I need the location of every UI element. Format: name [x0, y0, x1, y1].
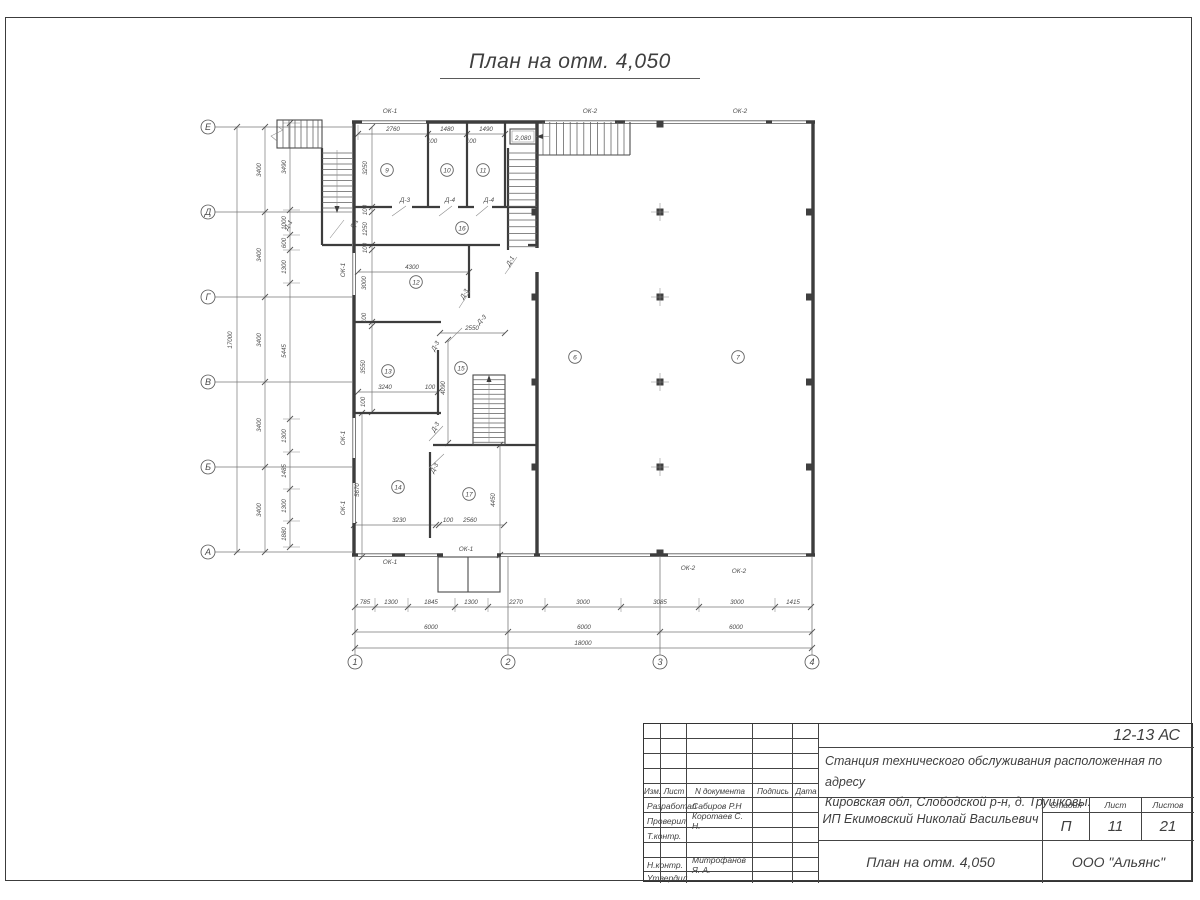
- room-number: 15: [457, 365, 465, 372]
- dimension-label: 1300: [464, 599, 478, 606]
- dimension-label: 1485: [281, 464, 288, 478]
- room-number: 12: [412, 279, 420, 286]
- dimension-label: 1480: [440, 126, 454, 133]
- dimension-label: 1880: [281, 527, 288, 541]
- stamp-role: [644, 843, 687, 858]
- door-label: Д-4: [483, 197, 495, 204]
- elevation-label: 2,080: [514, 135, 531, 142]
- dimension-label: 3400: [256, 163, 263, 177]
- dimension-label: 5445: [281, 344, 288, 358]
- sheet-label: Лист: [1089, 798, 1141, 813]
- dimension-label: 6000: [424, 624, 438, 631]
- drawing-sheet: План на отм. 4,050: [0, 0, 1200, 900]
- column-marker: [532, 294, 539, 301]
- client-name: ИП Екимовский Николай Васильевич: [819, 798, 1042, 841]
- dimension-label: 17000: [227, 331, 234, 349]
- dimension-label: 4450: [490, 493, 497, 507]
- door-label: Д-3: [430, 340, 442, 354]
- room-numbers: 9101116121315141767: [381, 164, 745, 501]
- dimension-label: 3400: [256, 333, 263, 347]
- column-marker: [657, 121, 664, 128]
- stamp-role: Проверил: [644, 813, 687, 828]
- room-number: 7: [736, 354, 740, 361]
- door-label: Д-1: [349, 218, 361, 232]
- stamp-row: [644, 754, 819, 769]
- window-label: ОК-2: [681, 565, 696, 572]
- elevation-value: 2,080: [514, 135, 531, 142]
- axis-label: А: [204, 547, 211, 557]
- room-number: 10: [443, 167, 451, 174]
- sheets-total: 21: [1141, 813, 1194, 841]
- dimension-label: 3550: [360, 360, 367, 374]
- column-marker: [532, 379, 539, 386]
- stamp-role: Утвердил: [644, 872, 687, 883]
- axis-label: 3: [657, 657, 662, 667]
- room-number: 14: [394, 484, 402, 491]
- window-label: ОК-1: [340, 430, 347, 445]
- window-label: ОК-1: [383, 108, 398, 115]
- stamp-header-list: Лист: [661, 784, 687, 798]
- dimension-label: 2560: [462, 517, 477, 524]
- room-number: 13: [384, 368, 392, 375]
- dimension-label: 3400: [256, 503, 263, 517]
- dimension-label: 3000: [361, 276, 368, 290]
- dimension-label: 3240: [378, 384, 392, 391]
- window-label: ОК-2: [732, 568, 747, 575]
- stamp-header-data: Дата: [793, 784, 819, 798]
- axis-label: Г: [206, 292, 212, 302]
- dimension-label: 5670: [354, 483, 361, 497]
- dimension-label: 4090: [440, 381, 447, 395]
- dimension-label: 100: [443, 517, 454, 524]
- axis-column-labels: 1234: [348, 655, 819, 669]
- dimension-label: 3400: [256, 248, 263, 262]
- axis-label: 1: [352, 657, 357, 667]
- stamp-header-podpis: Подпись: [753, 784, 793, 798]
- stamp-header-izm: Изм.: [644, 784, 661, 798]
- window-label: ОК-1: [459, 546, 474, 553]
- axis-label: 4: [809, 657, 814, 667]
- dimension-label: 785: [360, 599, 371, 606]
- sheet-number: 11: [1089, 813, 1141, 841]
- dimension-label: 18000: [574, 640, 592, 647]
- stamp-name: Коротаев С. Н.: [689, 813, 753, 828]
- dimension-label: 1300: [384, 599, 398, 606]
- door-label: Д-3: [399, 197, 411, 204]
- project-description: Станция технического обслуживания распол…: [819, 748, 1194, 798]
- window-label: ОК-1: [340, 262, 347, 277]
- dimension-label: 1300: [281, 429, 288, 443]
- stamp-role: Разработал: [644, 798, 687, 813]
- stamp-name: [689, 828, 753, 843]
- column-marker: [806, 294, 813, 301]
- dimension-label: 1250: [362, 222, 369, 236]
- column-marker: [806, 209, 813, 216]
- stamp-sheet-title: План на отм. 4,050: [819, 841, 1042, 883]
- dimension-label: 1300: [281, 499, 288, 513]
- dimension-label: 1490: [479, 126, 493, 133]
- porch: [438, 557, 500, 592]
- exterior-walls: [352, 121, 815, 557]
- stage-value: П: [1042, 813, 1089, 841]
- door-label: Д-1: [505, 255, 517, 269]
- column-marker: [806, 464, 813, 471]
- axis-label: Е: [205, 122, 212, 132]
- stamp-role: Т.контр.: [644, 828, 687, 843]
- room-number: 6: [573, 354, 577, 361]
- stamp-row: [644, 739, 819, 754]
- dimension-label: 2270: [508, 599, 523, 606]
- dimension-label: 2760: [385, 126, 400, 133]
- column-marker: [806, 379, 813, 386]
- title-block: Изм. Лист N документа Подпись Дата Разра…: [643, 723, 1193, 882]
- room-number: 11: [480, 167, 487, 174]
- stamp-row: [644, 769, 819, 784]
- dimension-label: 600: [281, 237, 288, 248]
- columns: [532, 121, 814, 557]
- dimension-label: 100: [360, 396, 367, 407]
- column-marker: [532, 464, 539, 471]
- project-line1: Станция технического обслуживания распол…: [825, 751, 1188, 792]
- dimension-label: 3000: [730, 599, 744, 606]
- dimension-label: 100: [425, 384, 436, 391]
- dimension-label: 1300: [281, 260, 288, 274]
- stage-label: Стадия: [1042, 798, 1089, 813]
- dimension-labels: 1700034003400340034003400349010006001300…: [227, 126, 800, 647]
- sheets-label: Листов: [1141, 798, 1194, 813]
- column-marker: [532, 209, 539, 216]
- dimension-label: 100: [362, 242, 369, 253]
- axis-label: Д: [204, 207, 212, 217]
- door-label: Д-4: [444, 197, 456, 204]
- dimension-label: 1845: [424, 599, 438, 606]
- window-label: ОК-2: [733, 108, 748, 115]
- door-label: Д-3: [430, 421, 442, 435]
- stamp-name: Митрофанов Я. А.: [689, 858, 753, 872]
- dimension-label: 100: [427, 138, 438, 145]
- stamp-header-ndoc: N документа: [687, 784, 753, 798]
- window-label: ОК-1: [383, 559, 398, 566]
- axis-row-labels: ЕДГВБА: [201, 120, 215, 559]
- door-labels: Д-3Д-4Д-4Д-1Д-1Д-1Д-3Д-3Д-3Д-3Д-3: [283, 197, 517, 475]
- dimension-label: 2550: [464, 325, 479, 332]
- dimension-label: 1415: [786, 599, 800, 606]
- company-name: ООО "Альянс": [1042, 841, 1194, 883]
- room-number: 9: [385, 167, 389, 174]
- dimension-label: 3250: [362, 161, 369, 175]
- room-number: 17: [465, 491, 473, 498]
- window-label: ОК-2: [583, 108, 598, 115]
- dimension-label: 100: [361, 312, 368, 323]
- dimension-label: 6000: [577, 624, 591, 631]
- room-number: 16: [458, 225, 466, 232]
- document-code: 12-13 АС: [819, 724, 1194, 748]
- dimension-label: 3230: [392, 517, 406, 524]
- column-marker: [657, 550, 664, 557]
- dimension-label: 3490: [281, 160, 288, 174]
- dimension-label: 6000: [729, 624, 743, 631]
- dimension-label: 3085: [653, 599, 667, 606]
- axis-label: В: [205, 377, 211, 387]
- window-labels: ОК-1ОК-2ОК-2ОК-1ОК-1ОК-1ОК-1ОК-1ОК-2ОК-2: [340, 108, 748, 575]
- stamp-role: Н.контр.: [644, 858, 687, 872]
- dimension-label: 3000: [576, 599, 590, 606]
- axis-label: Б: [205, 462, 211, 472]
- dimension-label: 100: [466, 138, 477, 145]
- stamp-name: [689, 872, 753, 883]
- stamp-row: [644, 724, 819, 739]
- window-label: ОК-1: [340, 500, 347, 515]
- dimension-label: 4300: [405, 264, 419, 271]
- axis-label: 2: [504, 657, 510, 667]
- dimension-label: 3400: [256, 418, 263, 432]
- dimension-label: 100: [362, 204, 369, 215]
